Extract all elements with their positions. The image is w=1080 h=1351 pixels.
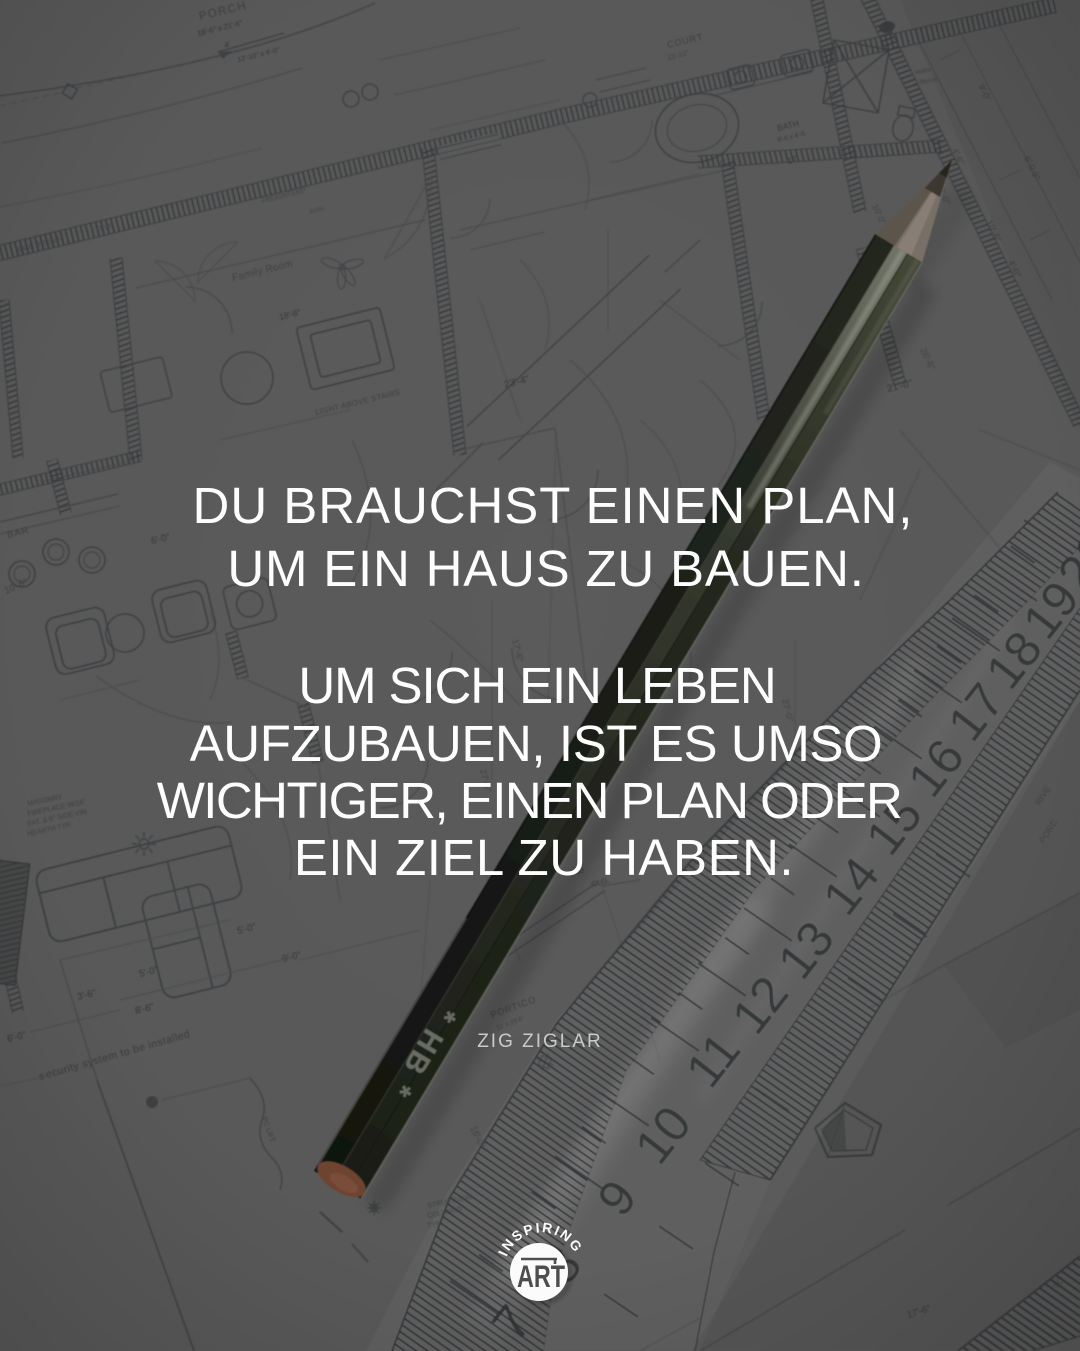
svg-text:WICHTIGER, EINEN PLAN ODER: WICHTIGER, EINEN PLAN ODER <box>157 772 902 829</box>
svg-text:EIN ZIEL ZU HABEN.: EIN ZIEL ZU HABEN. <box>294 829 794 886</box>
svg-text:UM SICH EIN LEBEN: UM SICH EIN LEBEN <box>298 657 775 714</box>
svg-text:AUFZUBAUEN, IST ES UMSO: AUFZUBAUEN, IST ES UMSO <box>190 715 883 772</box>
svg-text:DU BRAUCHST EINEN PLAN,: DU BRAUCHST EINEN PLAN, <box>193 477 914 534</box>
svg-text:UM EIN HAUS ZU BAUEN.: UM EIN HAUS ZU BAUEN. <box>227 540 864 597</box>
svg-text:ZIG ZIGLAR: ZIG ZIGLAR <box>477 1031 603 1052</box>
svg-text:ART: ART <box>517 1259 565 1294</box>
